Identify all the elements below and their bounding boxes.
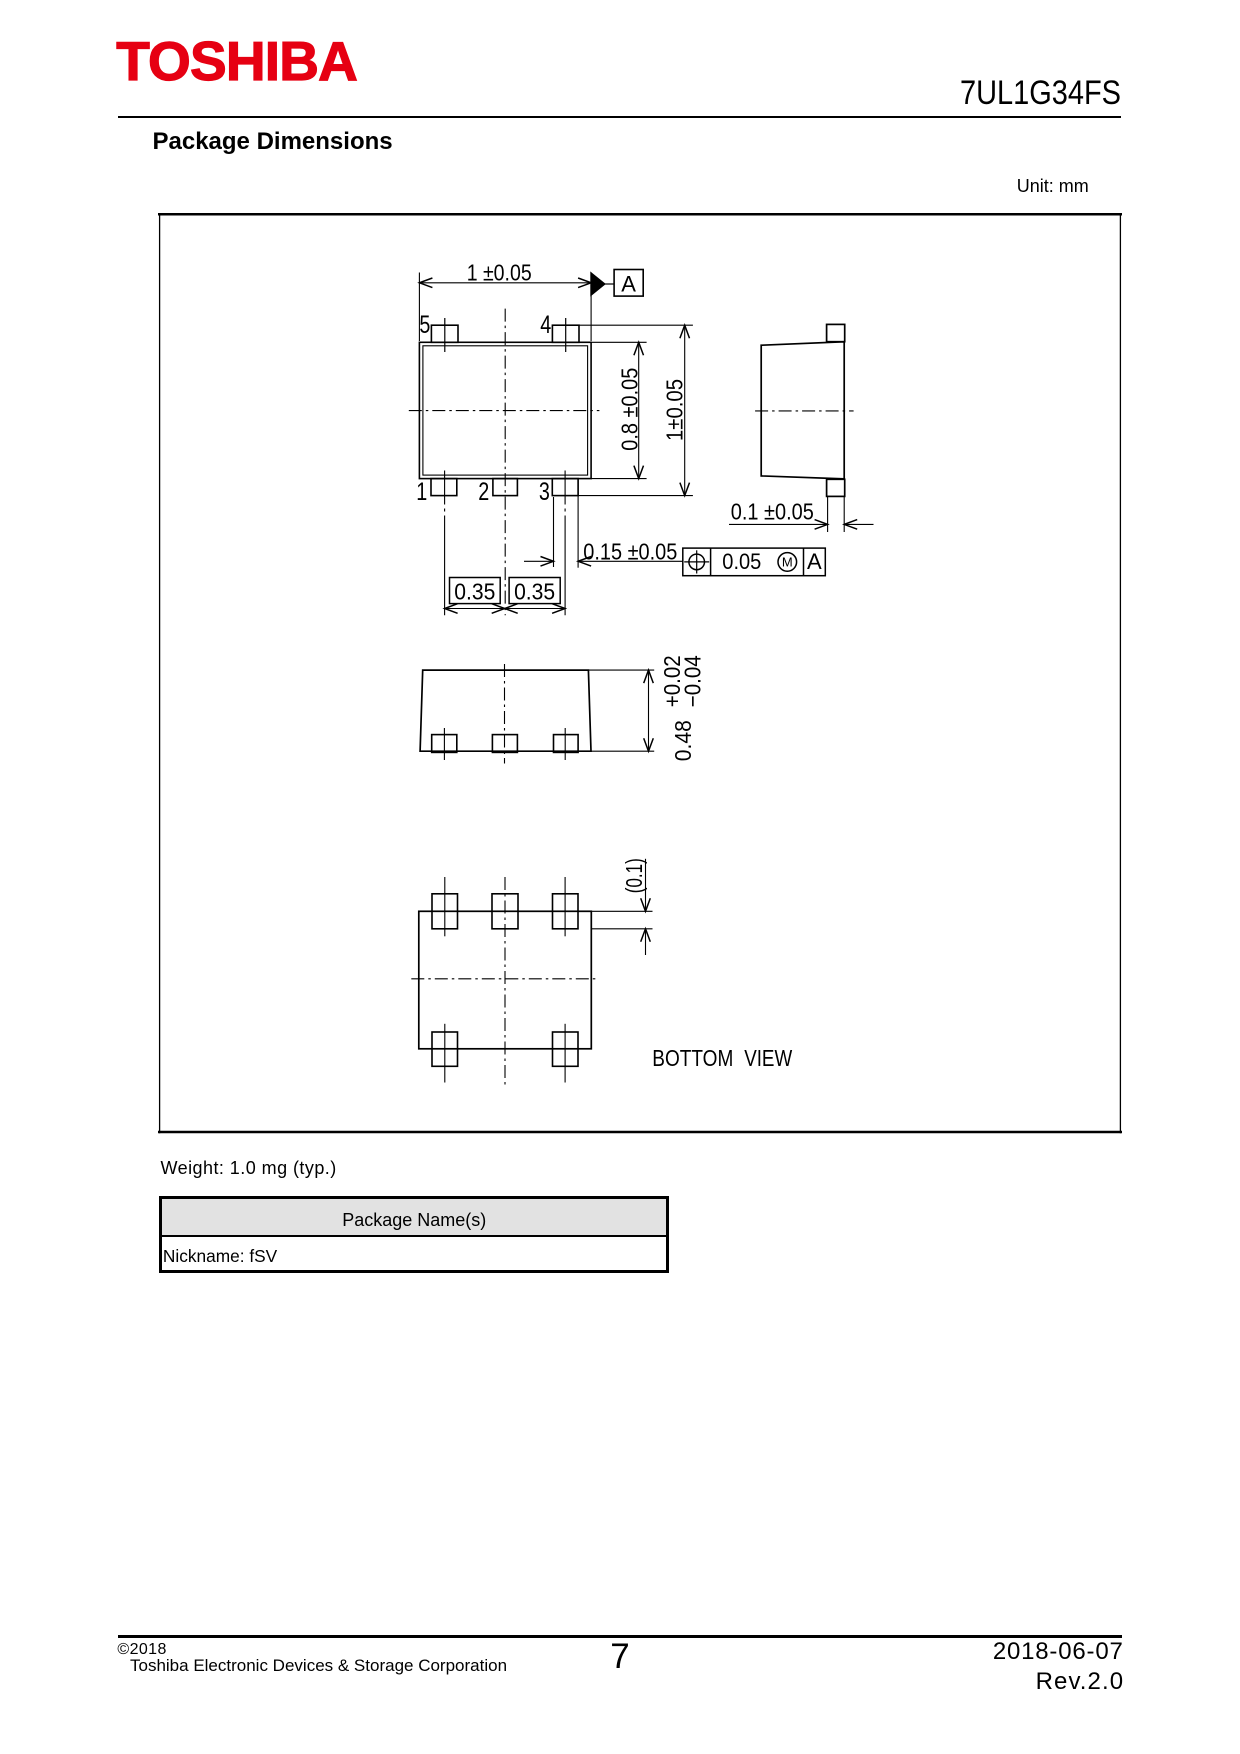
svg-text:4: 4 xyxy=(540,311,551,339)
svg-text:0.35: 0.35 xyxy=(514,579,555,605)
svg-text:0.8 ±0.05: 0.8 ±0.05 xyxy=(616,368,642,451)
svg-text:M: M xyxy=(782,555,793,570)
svg-text:0.48: 0.48 xyxy=(670,720,696,761)
svg-text:5: 5 xyxy=(419,311,430,339)
svg-text:(0.1): (0.1) xyxy=(621,858,647,893)
svg-text:BOTTOM: BOTTOM xyxy=(652,1045,733,1071)
svg-text:VIEW: VIEW xyxy=(744,1045,792,1071)
svg-text:A: A xyxy=(621,272,636,297)
svg-text:0.1 ±0.05: 0.1 ±0.05 xyxy=(731,498,814,524)
svg-text:0.35: 0.35 xyxy=(454,579,495,605)
svg-text:0.15 ±0.05: 0.15 ±0.05 xyxy=(583,539,677,565)
svg-text:1 ±0.05: 1 ±0.05 xyxy=(467,259,532,285)
svg-text:0.05: 0.05 xyxy=(722,549,761,574)
svg-text:A: A xyxy=(807,549,822,574)
svg-text:1: 1 xyxy=(416,478,427,506)
svg-text:−0.04: −0.04 xyxy=(680,655,706,707)
svg-text:2: 2 xyxy=(478,478,489,506)
svg-text:1±0.05: 1±0.05 xyxy=(662,379,688,441)
svg-text:3: 3 xyxy=(539,478,550,506)
